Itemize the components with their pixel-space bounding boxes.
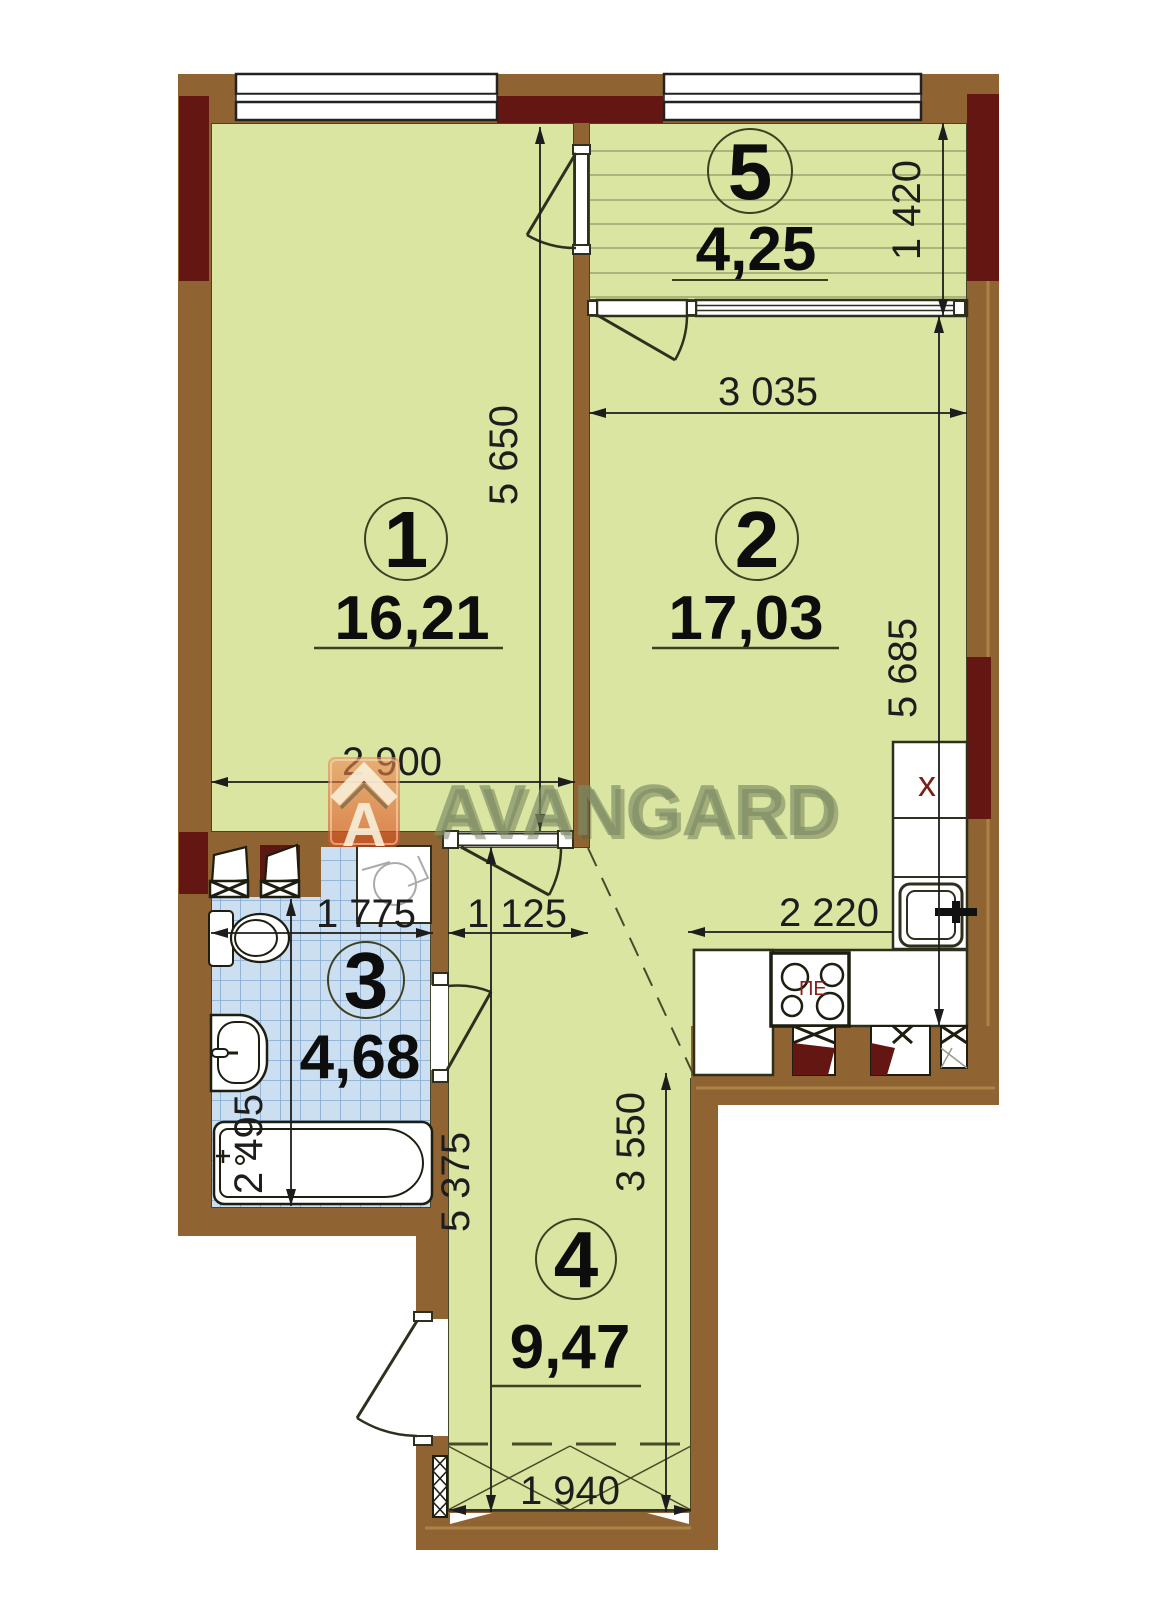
svg-text:4: 4	[554, 1215, 599, 1304]
svg-text:3 550: 3 550	[609, 1092, 653, 1192]
svg-text:5 650: 5 650	[482, 405, 526, 505]
svg-text:AVANGARD: AVANGARD	[432, 771, 837, 851]
svg-text:4,25: 4,25	[696, 215, 817, 284]
svg-text:A: A	[342, 791, 387, 860]
svg-text:3: 3	[344, 936, 389, 1025]
svg-text:2 220: 2 220	[779, 891, 879, 935]
svg-text:1: 1	[384, 495, 429, 584]
svg-text:5 375: 5 375	[434, 1132, 478, 1232]
svg-text:17,03: 17,03	[668, 584, 823, 653]
svg-text:1 940: 1 940	[520, 1469, 620, 1513]
svg-text:2: 2	[735, 495, 780, 584]
svg-text:2 495: 2 495	[227, 1094, 271, 1194]
svg-text:x: x	[918, 763, 936, 804]
svg-text:ПЕ: ПЕ	[799, 978, 827, 1000]
svg-text:3 035: 3 035	[718, 370, 818, 414]
svg-text:9,47: 9,47	[510, 1313, 631, 1382]
svg-text:1 420: 1 420	[885, 160, 929, 260]
svg-text:1 775: 1 775	[316, 892, 416, 936]
svg-text:16,21: 16,21	[334, 584, 489, 653]
svg-text:4,68: 4,68	[300, 1023, 421, 1092]
svg-text:1 125: 1 125	[467, 892, 567, 936]
svg-text:5: 5	[728, 127, 773, 216]
svg-text:5 685: 5 685	[881, 618, 925, 718]
